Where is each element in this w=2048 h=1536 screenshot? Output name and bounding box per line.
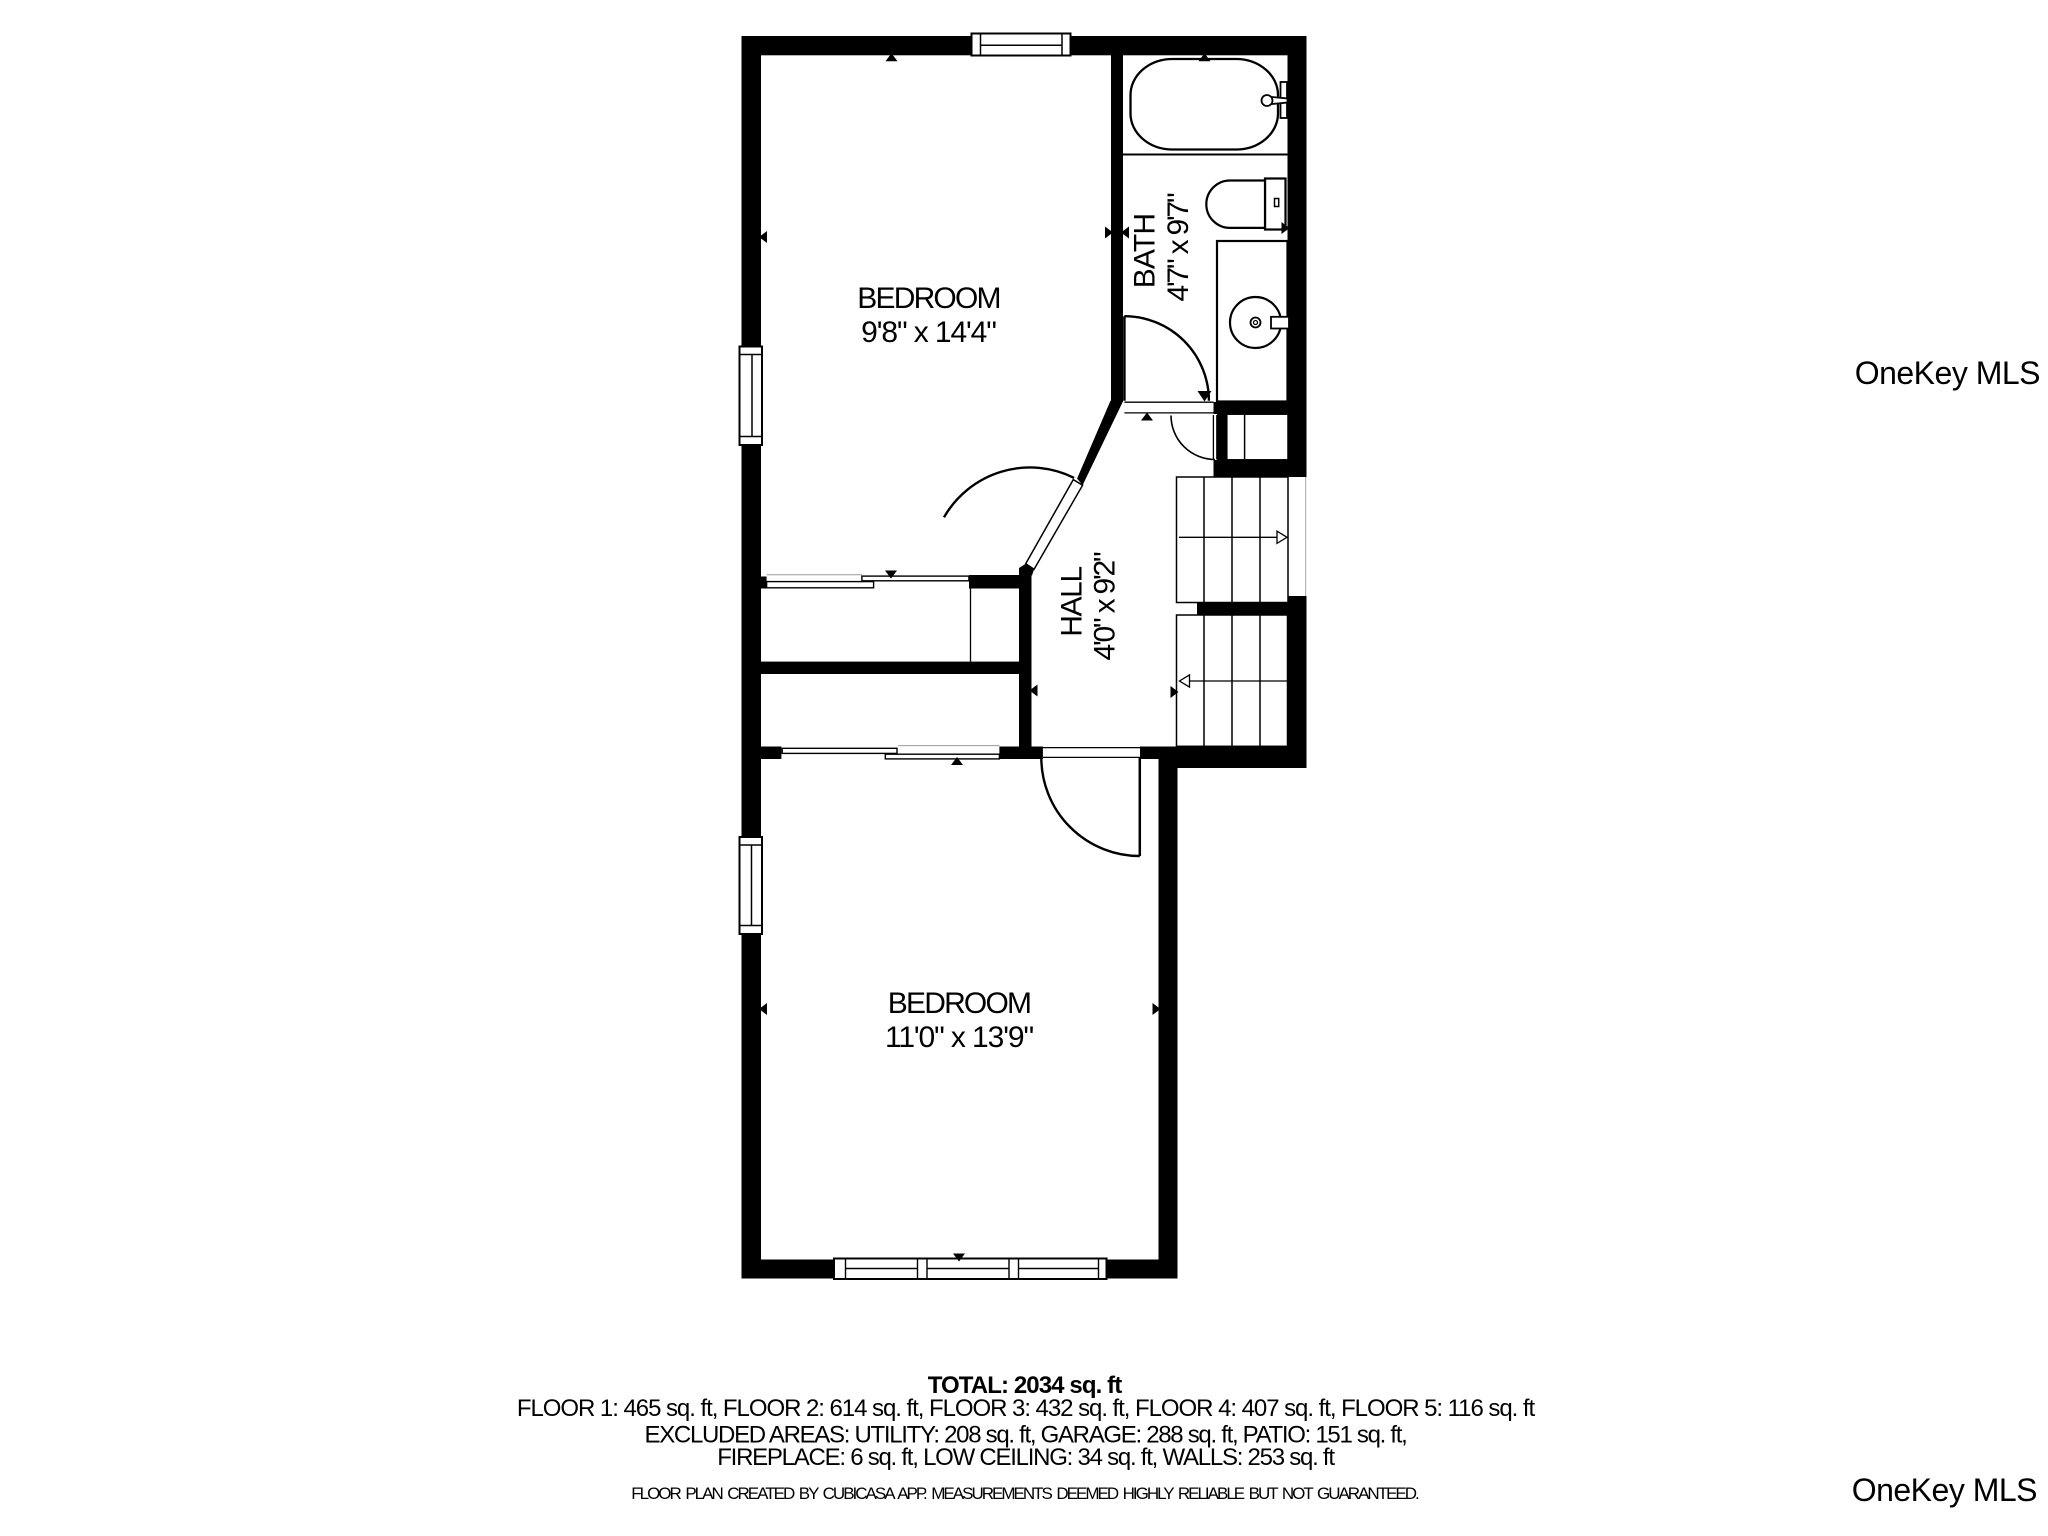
- svg-text:BATH: BATH: [1129, 214, 1162, 289]
- svg-text:9'8" x 14'4": 9'8" x 14'4": [861, 316, 996, 349]
- svg-text:FIREPLACE: 6 sq. ft, LOW CEILI: FIREPLACE: 6 sq. ft, LOW CEILING: 34 sq.…: [717, 1444, 1335, 1471]
- svg-text:BEDROOM: BEDROOM: [888, 987, 1030, 1020]
- svg-text:OneKey MLS: OneKey MLS: [1852, 1472, 2037, 1508]
- svg-text:11'0" x 13'9": 11'0" x 13'9": [885, 1021, 1033, 1054]
- svg-text:4'0" x 9'2": 4'0" x 9'2": [1089, 552, 1122, 661]
- svg-text:FLOOR 1: 465 sq. ft, FLOOR 2:: FLOOR 1: 465 sq. ft, FLOOR 2: 614 sq. ft…: [517, 1395, 1536, 1422]
- svg-text:4'7" x 9'7": 4'7" x 9'7": [1162, 193, 1195, 302]
- svg-text:OneKey MLS: OneKey MLS: [1855, 355, 2040, 391]
- svg-text:FLOOR PLAN CREATED BY CUBICASA: FLOOR PLAN CREATED BY CUBICASA APP. MEAS…: [631, 1484, 1419, 1503]
- svg-text:BEDROOM: BEDROOM: [857, 282, 999, 315]
- svg-text:HALL: HALL: [1056, 567, 1089, 637]
